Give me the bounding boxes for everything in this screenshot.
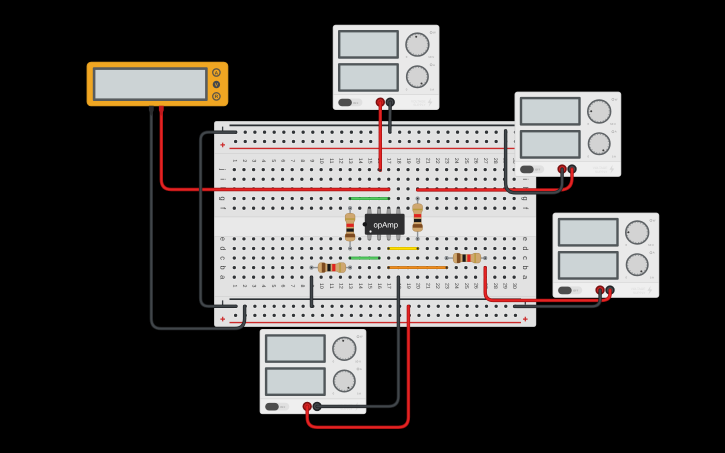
svg-text:3: 3 (251, 159, 257, 162)
svg-text:22: 22 (434, 283, 440, 289)
svg-text:16: 16 (376, 283, 382, 289)
svg-text:24: 24 (453, 158, 459, 164)
svg-text:25: 25 (463, 158, 469, 164)
svg-text:28: 28 (492, 158, 498, 164)
svg-text:d: d (218, 246, 227, 250)
svg-text:30: 30 (511, 283, 517, 289)
svg-text:14: 14 (357, 283, 363, 289)
svg-text:11: 11 (328, 283, 334, 288)
svg-text:10: 10 (318, 158, 324, 164)
svg-text:c: c (218, 256, 227, 260)
svg-text:d: d (521, 246, 530, 250)
svg-text:21: 21 (424, 283, 430, 289)
svg-text:g: g (218, 196, 227, 200)
svg-text:2: 2 (241, 159, 247, 162)
svg-text:7: 7 (289, 284, 295, 287)
svg-text:6: 6 (280, 284, 286, 287)
svg-text:14: 14 (357, 158, 363, 164)
svg-text:20: 20 (415, 283, 421, 289)
svg-text:8: 8 (299, 159, 305, 162)
svg-text:j: j (218, 168, 227, 171)
svg-text:24: 24 (453, 283, 459, 289)
svg-text:b: b (521, 266, 530, 270)
svg-text:29: 29 (502, 283, 508, 289)
svg-text:12: 12 (338, 283, 344, 289)
svg-text:c: c (521, 256, 530, 260)
svg-text:9: 9 (309, 159, 315, 162)
svg-text:15: 15 (366, 283, 372, 289)
svg-text:13: 13 (347, 283, 353, 289)
svg-text:7: 7 (289, 159, 295, 162)
svg-text:A: A (215, 70, 219, 76)
svg-text:10: 10 (318, 283, 324, 289)
svg-text:28: 28 (492, 283, 498, 289)
svg-text:19: 19 (405, 158, 411, 164)
svg-text:21: 21 (424, 158, 430, 164)
svg-text:17: 17 (386, 283, 392, 289)
svg-text:3: 3 (251, 284, 257, 287)
svg-text:19: 19 (405, 283, 411, 289)
svg-text:b: b (218, 266, 227, 270)
svg-text:R: R (215, 94, 219, 100)
svg-text:27: 27 (482, 158, 488, 164)
svg-text:g: g (521, 196, 530, 200)
svg-text:15: 15 (366, 158, 372, 164)
svg-text:20: 20 (415, 158, 421, 164)
svg-text:5: 5 (270, 284, 276, 287)
svg-text:e: e (521, 237, 530, 241)
svg-text:22: 22 (434, 158, 440, 164)
svg-text:17: 17 (386, 158, 392, 164)
svg-text:1: 1 (231, 159, 237, 162)
svg-text:2: 2 (241, 284, 247, 287)
svg-text:6: 6 (280, 159, 286, 162)
svg-text:4: 4 (260, 159, 266, 162)
svg-text:11: 11 (328, 158, 334, 163)
svg-text:1: 1 (231, 284, 237, 287)
svg-text:e: e (218, 237, 227, 241)
svg-text:23: 23 (444, 283, 450, 289)
svg-text:13: 13 (347, 158, 353, 164)
svg-text:5: 5 (270, 159, 276, 162)
svg-text:26: 26 (473, 283, 479, 289)
svg-text:12: 12 (338, 158, 344, 164)
svg-text:26: 26 (473, 158, 479, 164)
svg-text:opAmp: opAmp (373, 220, 398, 229)
svg-text:4: 4 (260, 284, 266, 287)
svg-text:18: 18 (395, 158, 401, 164)
svg-text:8: 8 (299, 284, 305, 287)
svg-text:25: 25 (463, 283, 469, 289)
svg-text:23: 23 (444, 158, 450, 164)
